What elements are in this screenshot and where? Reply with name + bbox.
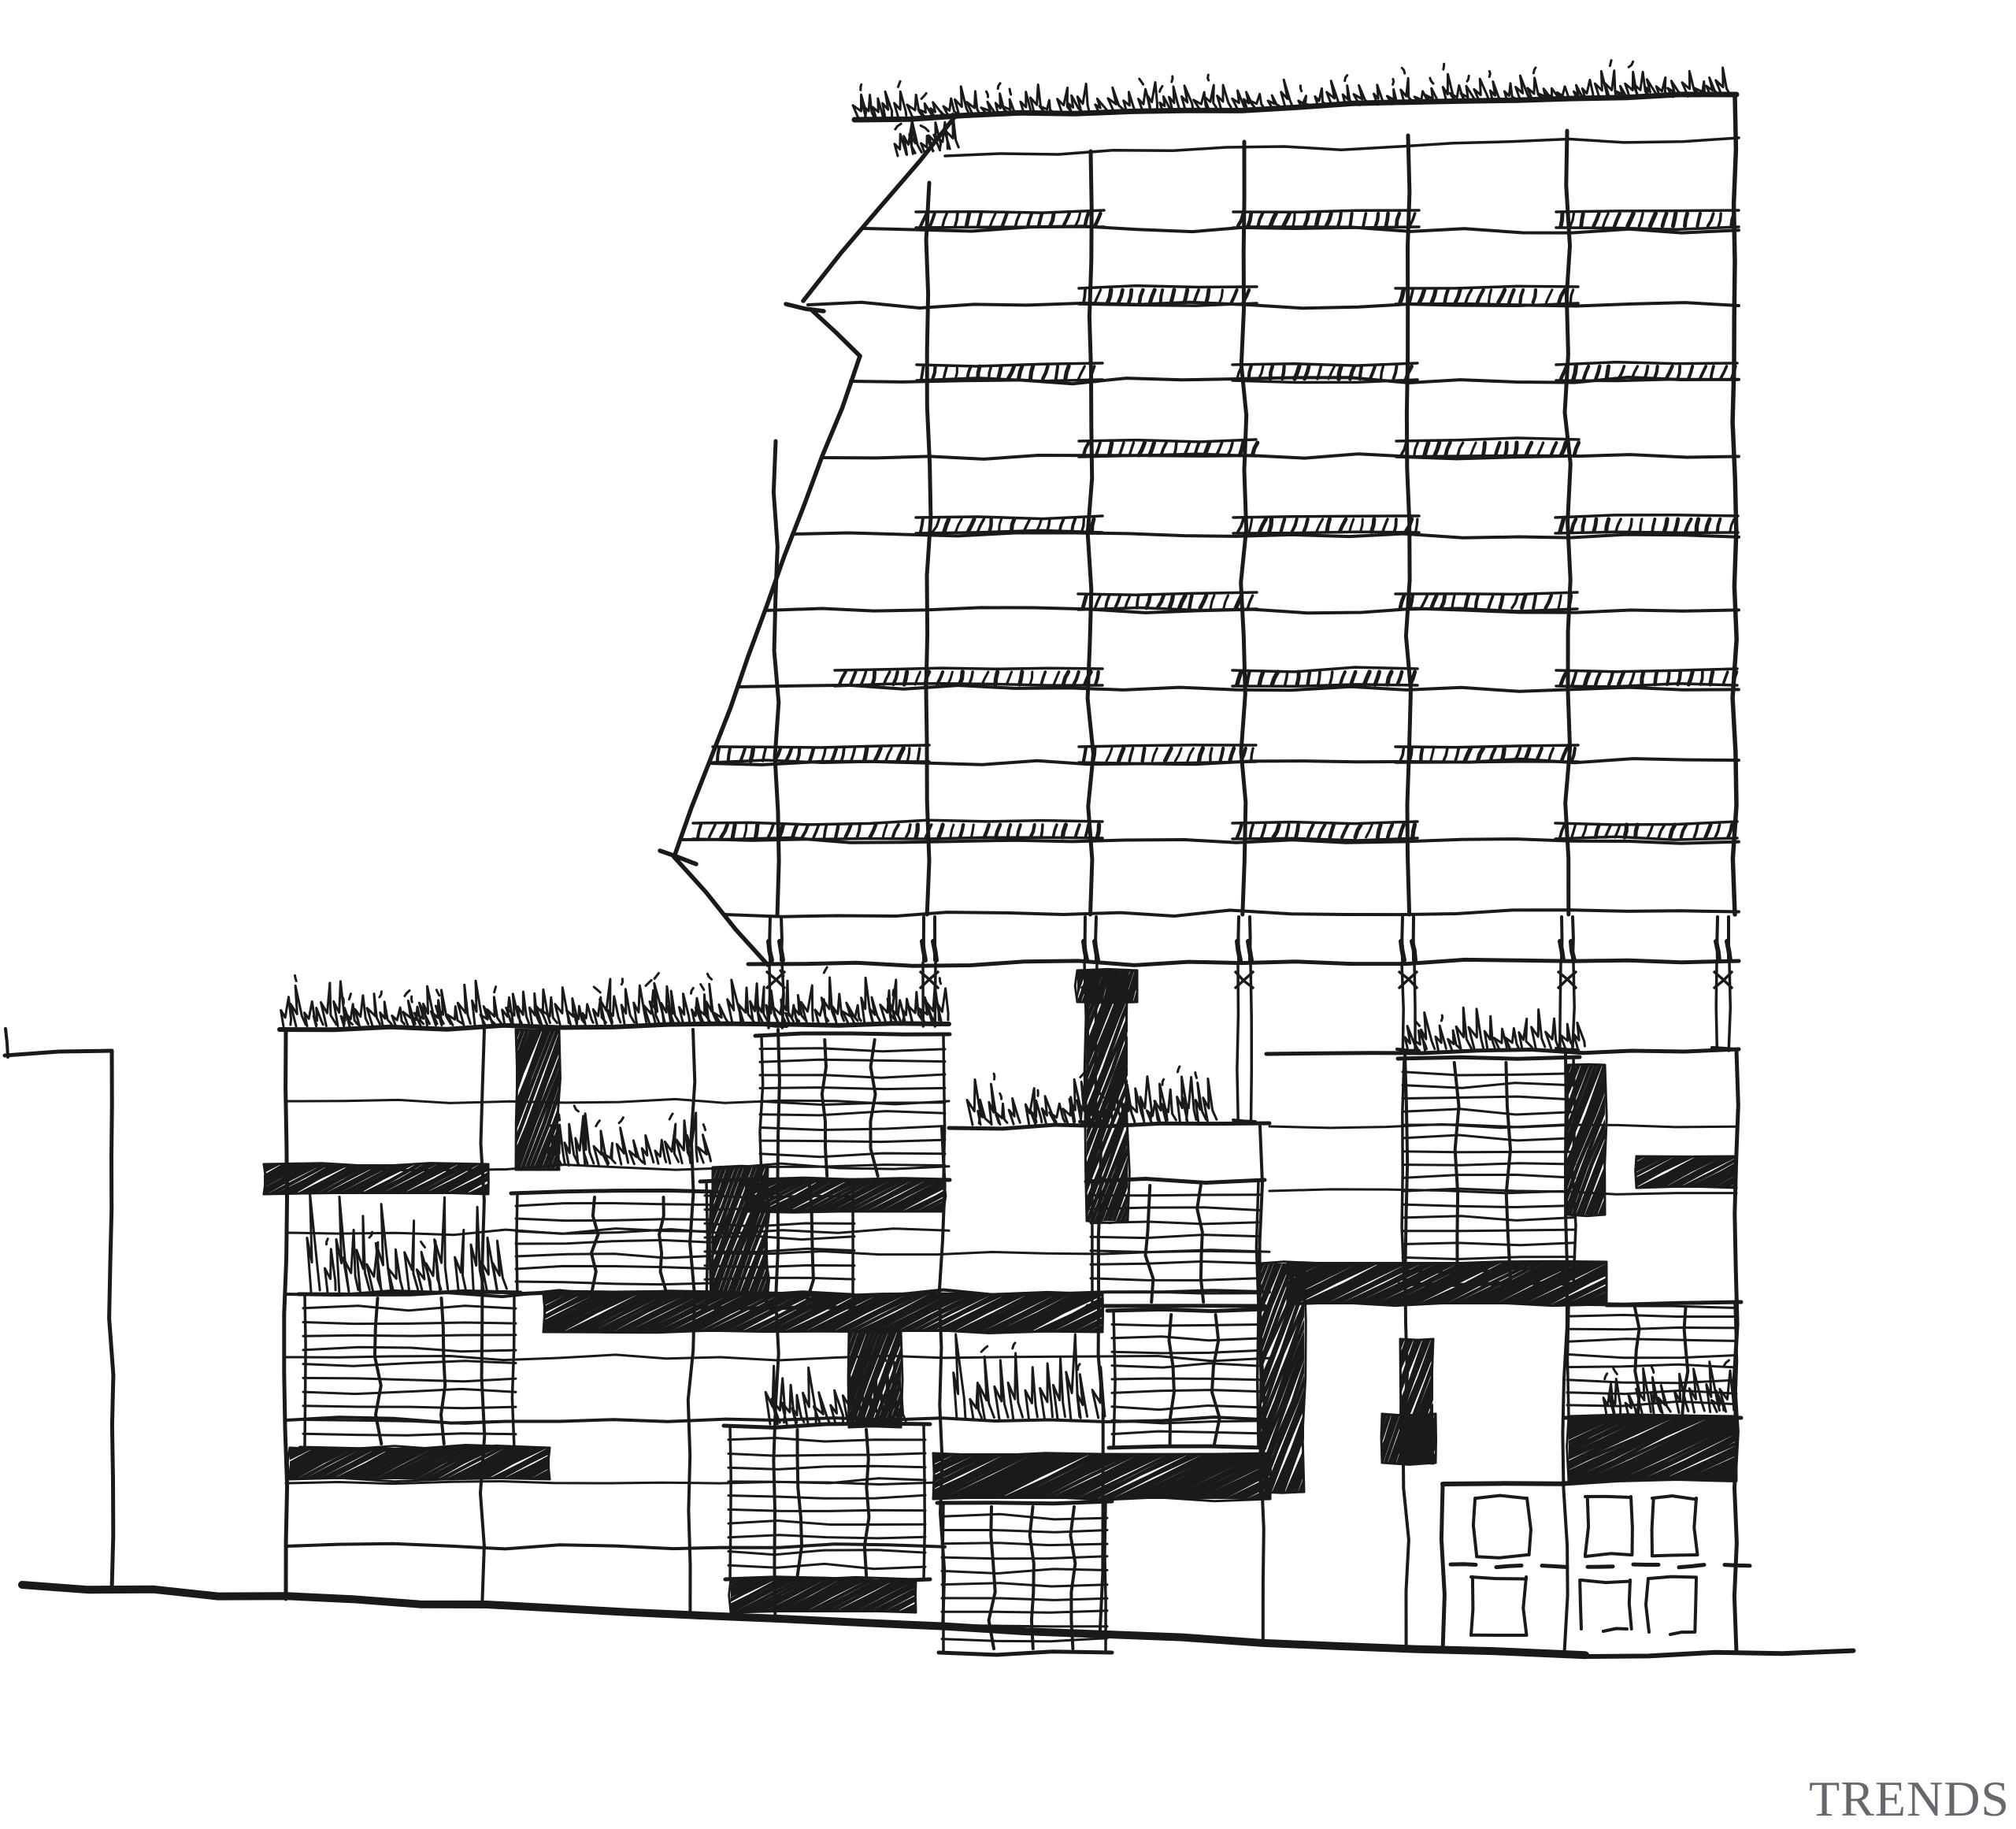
architectural-elevation-sketch: TRENDS xyxy=(0,0,2016,1829)
site-wall-left xyxy=(5,1029,113,1590)
podium-roof-gardens xyxy=(280,967,1739,1129)
tower xyxy=(660,95,1739,965)
sketch-canvas xyxy=(0,0,2016,1829)
window-wing xyxy=(1441,1478,1750,1651)
trends-watermark: TRENDS xyxy=(1809,1774,2010,1824)
